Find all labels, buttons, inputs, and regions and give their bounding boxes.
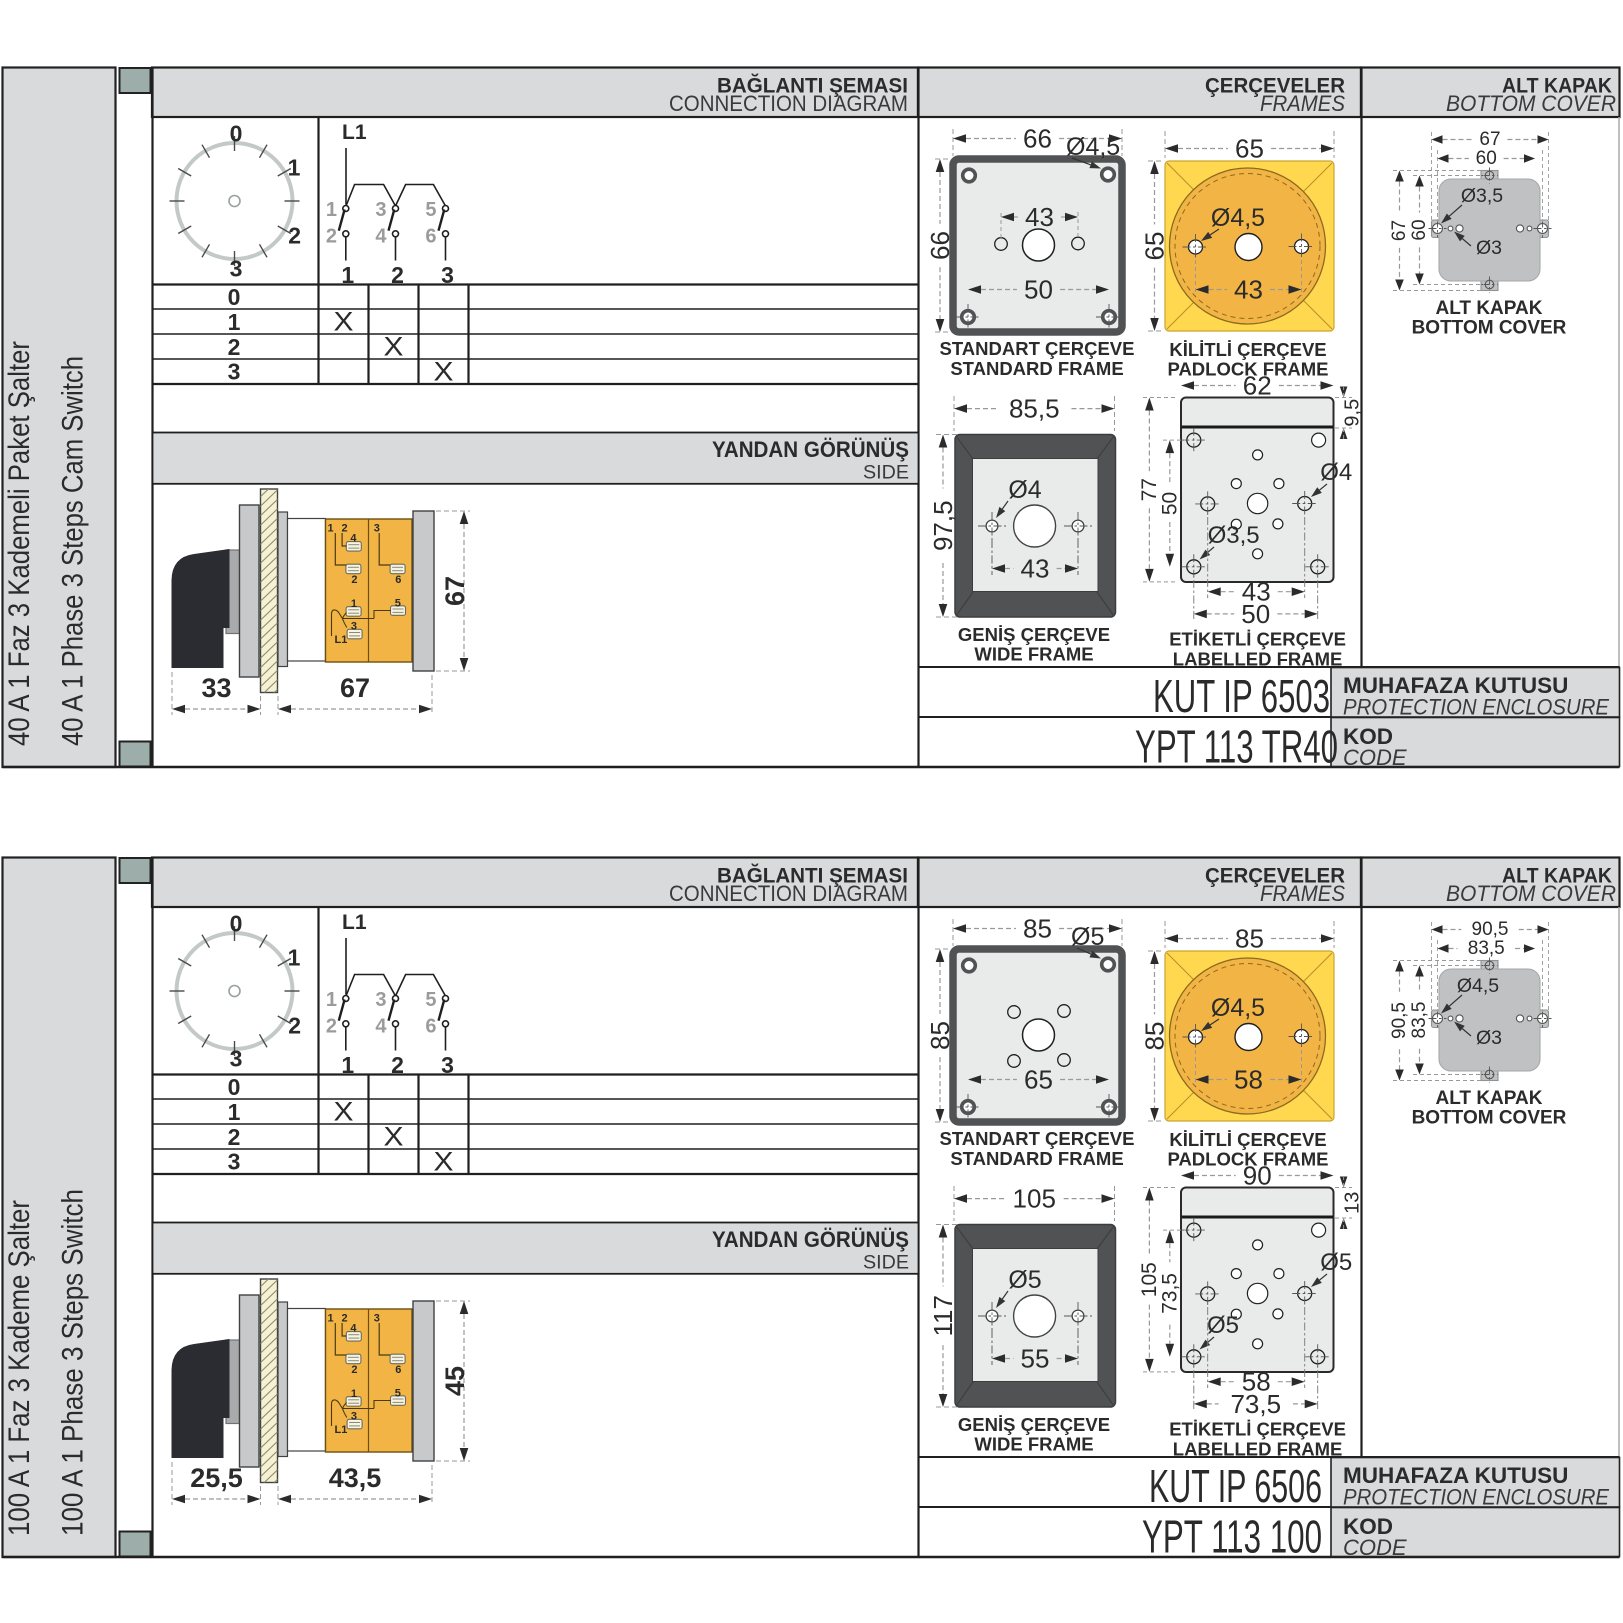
svg-text:X: X [334,307,354,337]
svg-text:3: 3 [228,359,241,385]
svg-text:KİLİTLİ ÇERÇEVE: KİLİTLİ ÇERÇEVE [1169,1129,1326,1150]
svg-text:1: 1 [327,523,333,535]
svg-text:STANDARD FRAME: STANDARD FRAME [950,1148,1123,1169]
svg-text:65: 65 [1140,232,1170,261]
svg-text:2: 2 [228,1124,241,1150]
svg-text:L1: L1 [335,1424,348,1436]
svg-text:2: 2 [326,1016,337,1038]
svg-text:5: 5 [395,1388,401,1400]
svg-text:KUT IP 6503: KUT IP 6503 [1153,670,1330,722]
svg-text:83,5: 83,5 [1409,1002,1430,1039]
svg-text:90,5: 90,5 [1389,1002,1410,1039]
svg-text:ETİKETLİ ÇERÇEVE: ETİKETLİ ÇERÇEVE [1169,1419,1346,1440]
svg-text:45: 45 [440,1366,470,1396]
svg-text:85: 85 [925,1021,955,1050]
svg-text:0: 0 [230,121,243,147]
svg-text:1: 1 [326,989,337,1011]
svg-text:90: 90 [1243,1161,1272,1191]
svg-text:2: 2 [391,262,404,288]
svg-text:YPT 113 100: YPT 113 100 [1142,1511,1322,1563]
svg-text:67: 67 [340,673,370,703]
svg-text:4: 4 [375,1016,387,1038]
svg-text:1: 1 [326,199,337,221]
svg-text:33: 33 [201,673,231,703]
svg-text:43: 43 [1021,554,1050,584]
svg-text:STANDARD FRAME: STANDARD FRAME [950,358,1123,379]
svg-text:40 A 1 Faz 3 Kademeli Paket Şa: 40 A 1 Faz 3 Kademeli Paket Şalter [3,341,36,746]
svg-text:58: 58 [1234,1065,1263,1095]
svg-text:3: 3 [374,523,380,535]
svg-text:9,5: 9,5 [1342,399,1364,427]
svg-text:2: 2 [288,1013,301,1039]
svg-text:Ø3,5: Ø3,5 [1208,522,1260,549]
svg-text:CODE: CODE [1343,745,1407,770]
svg-text:3: 3 [375,989,386,1011]
svg-text:2: 2 [326,226,337,248]
svg-text:2: 2 [351,574,357,586]
svg-text:85: 85 [1235,924,1264,954]
svg-text:55: 55 [1021,1344,1050,1374]
svg-text:1: 1 [351,1388,357,1400]
svg-text:1: 1 [288,945,301,971]
svg-text:BOTTOM COVER: BOTTOM COVER [1412,1108,1567,1129]
svg-text:85: 85 [1140,1022,1170,1051]
svg-text:BOTTOM COVER: BOTTOM COVER [1446,881,1616,906]
svg-text:3: 3 [230,1046,243,1072]
svg-text:0: 0 [228,1074,241,1100]
svg-text:100 A 1 Faz 3 Kademe Şalter: 100 A 1 Faz 3 Kademe Şalter [3,1200,36,1536]
svg-text:3: 3 [441,1052,454,1078]
svg-text:43: 43 [1025,202,1054,232]
svg-text:3: 3 [351,621,357,633]
svg-text:4: 4 [350,1323,357,1335]
svg-text:6: 6 [425,226,436,248]
svg-text:1: 1 [351,598,357,610]
svg-text:STANDART ÇERÇEVE: STANDART ÇERÇEVE [940,1128,1135,1149]
svg-text:85,5: 85,5 [1009,394,1060,424]
svg-text:97,5: 97,5 [928,500,958,551]
svg-text:2: 2 [342,523,348,535]
svg-text:X: X [384,1122,404,1152]
svg-text:Ø5: Ø5 [1071,923,1104,951]
svg-text:105: 105 [1013,1184,1056,1214]
svg-text:50: 50 [1241,599,1270,629]
svg-text:43,5: 43,5 [329,1463,382,1493]
svg-text:60: 60 [1476,148,1497,169]
svg-text:SIDE: SIDE [863,1252,909,1274]
svg-text:PROTECTION ENCLOSURE: PROTECTION ENCLOSURE [1343,1485,1609,1510]
svg-text:40 A 1 Phase 3 Steps Cam Switc: 40 A 1 Phase 3 Steps Cam Switch [57,356,90,746]
svg-text:4: 4 [350,533,357,545]
svg-text:X: X [384,332,404,362]
svg-text:Ø4,5: Ø4,5 [1066,133,1120,161]
svg-text:FRAMES: FRAMES [1260,91,1345,116]
svg-text:50: 50 [1024,275,1053,305]
svg-text:Ø5: Ø5 [1320,1249,1352,1276]
svg-text:1: 1 [288,155,301,181]
svg-text:65: 65 [1024,1065,1053,1095]
svg-text:66: 66 [925,231,955,260]
svg-text:66: 66 [1023,124,1052,154]
svg-text:4: 4 [375,226,387,248]
svg-text:X: X [334,1097,354,1127]
svg-text:2: 2 [342,1313,348,1325]
svg-text:KUT IP 6506: KUT IP 6506 [1149,1460,1322,1512]
svg-text:CONNECTION DIAGRAM: CONNECTION DIAGRAM [669,91,908,116]
svg-text:60: 60 [1409,219,1430,240]
svg-text:YANDAN GÖRÜNÜŞ: YANDAN GÖRÜNÜŞ [712,1227,909,1252]
svg-text:3: 3 [374,1313,380,1325]
svg-text:BOTTOM COVER: BOTTOM COVER [1446,91,1616,116]
svg-text:5: 5 [425,199,436,221]
svg-text:67: 67 [440,576,470,606]
svg-text:SIDE: SIDE [863,462,909,484]
svg-text:ALT KAPAK: ALT KAPAK [1436,1088,1543,1109]
svg-text:PROTECTION ENCLOSURE: PROTECTION ENCLOSURE [1343,695,1609,720]
svg-text:3: 3 [351,1411,357,1423]
svg-text:FRAMES: FRAMES [1260,881,1345,906]
svg-text:L1: L1 [335,634,348,646]
svg-text:3: 3 [375,199,386,221]
svg-text:67: 67 [1389,220,1410,241]
svg-text:YANDAN GÖRÜNÜŞ: YANDAN GÖRÜNÜŞ [712,437,909,462]
svg-text:62: 62 [1243,371,1272,401]
svg-text:6: 6 [395,1364,401,1376]
svg-text:5: 5 [425,989,436,1011]
svg-text:65: 65 [1235,134,1264,164]
svg-text:100 A 1 Phase 3 Steps Switch: 100 A 1 Phase 3 Steps Switch [57,1189,90,1536]
svg-text:1: 1 [341,1052,354,1078]
svg-text:Ø3: Ø3 [1476,1027,1502,1049]
svg-text:1: 1 [228,309,241,335]
svg-text:X: X [434,1147,454,1177]
svg-text:67: 67 [1479,129,1500,150]
svg-text:WIDE FRAME: WIDE FRAME [974,644,1093,665]
svg-text:L1: L1 [342,911,367,934]
svg-text:2: 2 [288,223,301,249]
svg-text:L1: L1 [342,121,367,144]
svg-text:50: 50 [1158,492,1181,515]
svg-text:117: 117 [928,1295,958,1336]
svg-text:3: 3 [228,1149,241,1175]
svg-text:1: 1 [327,1313,333,1325]
svg-text:73,5: 73,5 [1158,1273,1181,1314]
svg-text:73,5: 73,5 [1230,1389,1281,1419]
svg-text:0: 0 [230,911,243,937]
svg-text:Ø3,5: Ø3,5 [1461,185,1503,207]
svg-text:0: 0 [228,284,241,310]
svg-text:43: 43 [1234,275,1263,305]
svg-text:6: 6 [395,574,401,586]
svg-text:Ø5: Ø5 [1008,1266,1041,1294]
svg-text:3: 3 [441,262,454,288]
svg-text:STANDART ÇERÇEVE: STANDART ÇERÇEVE [940,338,1135,359]
svg-text:GENİŞ ÇERÇEVE: GENİŞ ÇERÇEVE [958,624,1110,645]
svg-text:CODE: CODE [1343,1535,1407,1560]
svg-text:Ø4: Ø4 [1008,476,1041,504]
svg-text:Ø4,5: Ø4,5 [1457,975,1499,997]
svg-text:83,5: 83,5 [1468,938,1505,959]
svg-text:BOTTOM COVER: BOTTOM COVER [1412,318,1567,339]
svg-text:2: 2 [228,334,241,360]
svg-text:WIDE FRAME: WIDE FRAME [974,1434,1093,1455]
svg-text:Ø4,5: Ø4,5 [1211,994,1265,1022]
svg-text:X: X [434,357,454,387]
svg-text:85: 85 [1023,914,1052,944]
svg-text:13: 13 [1342,1192,1364,1214]
svg-text:CONNECTION DIAGRAM: CONNECTION DIAGRAM [669,881,908,906]
svg-text:6: 6 [425,1016,436,1038]
svg-text:Ø4: Ø4 [1320,459,1352,486]
svg-text:GENİŞ ÇERÇEVE: GENİŞ ÇERÇEVE [958,1414,1110,1435]
svg-text:YPT 113 TR40: YPT 113 TR40 [1135,721,1338,773]
svg-text:1: 1 [341,262,354,288]
svg-text:Ø5: Ø5 [1207,1312,1239,1339]
svg-text:ALT KAPAK: ALT KAPAK [1436,298,1543,319]
svg-text:90,5: 90,5 [1472,919,1509,940]
svg-text:ETİKETLİ ÇERÇEVE: ETİKETLİ ÇERÇEVE [1169,629,1346,650]
svg-text:Ø4,5: Ø4,5 [1211,204,1265,232]
svg-text:2: 2 [351,1364,357,1376]
svg-text:KİLİTLİ ÇERÇEVE: KİLİTLİ ÇERÇEVE [1169,339,1326,360]
svg-text:1: 1 [228,1099,241,1125]
svg-text:2: 2 [391,1052,404,1078]
svg-text:5: 5 [395,598,401,610]
svg-text:Ø3: Ø3 [1476,237,1502,259]
svg-text:3: 3 [230,256,243,282]
svg-text:25,5: 25,5 [190,1463,243,1493]
